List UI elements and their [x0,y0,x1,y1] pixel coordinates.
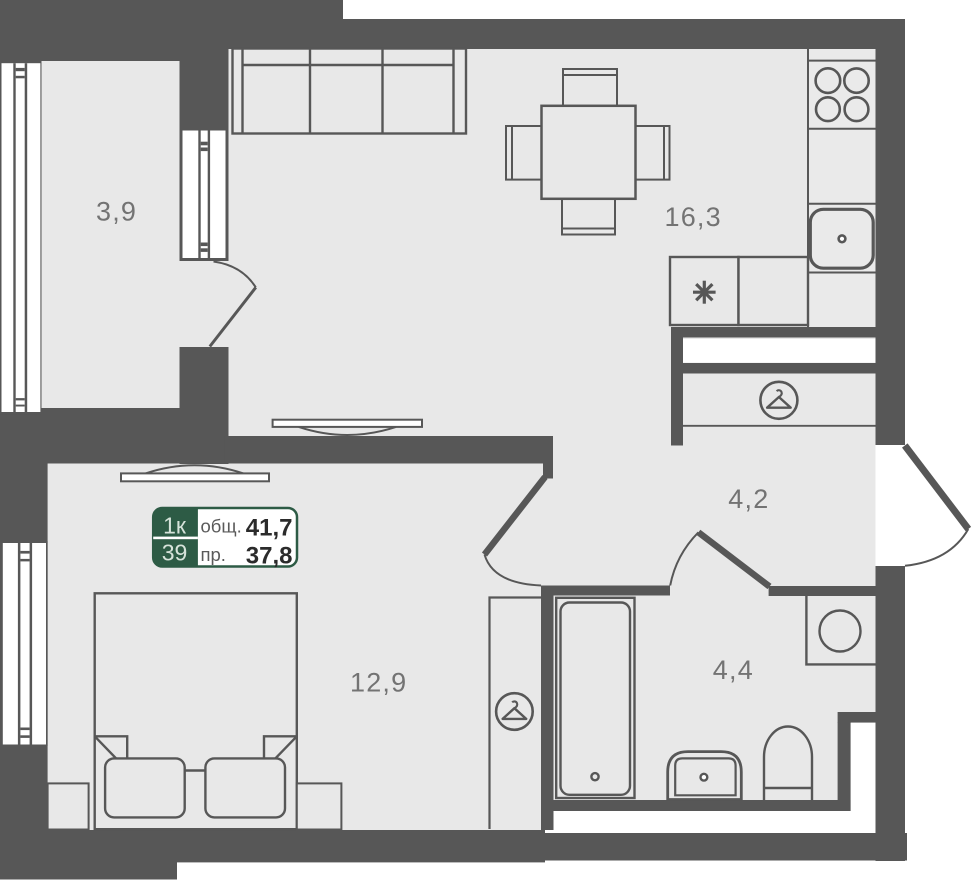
svg-text:16,3: 16,3 [665,202,722,232]
svg-text:пр.: пр. [201,544,226,565]
svg-text:39: 39 [162,540,188,566]
svg-text:37,8: 37,8 [246,543,293,570]
svg-text:1к: 1к [163,513,187,539]
svg-text:12,9: 12,9 [350,668,407,698]
svg-text:3,9: 3,9 [96,197,137,227]
svg-text:41,7: 41,7 [246,515,293,542]
svg-text:общ.: общ. [201,516,242,537]
svg-text:4,2: 4,2 [728,484,769,514]
svg-text:4,4: 4,4 [713,655,754,685]
